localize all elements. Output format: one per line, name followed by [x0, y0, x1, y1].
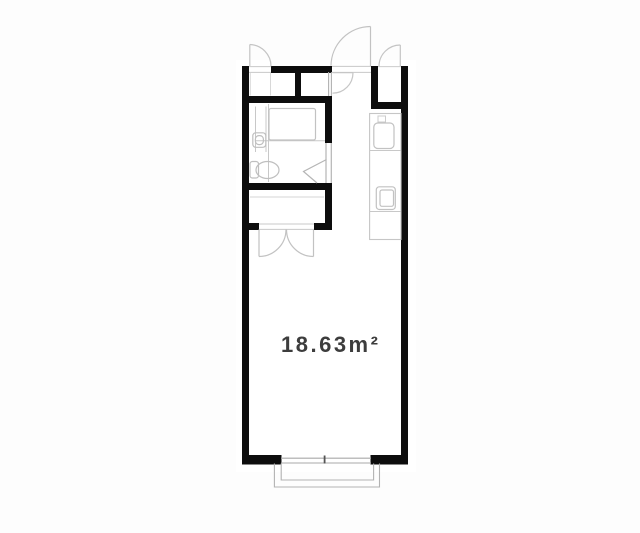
svg-text:18.63m²: 18.63m²: [281, 332, 380, 357]
